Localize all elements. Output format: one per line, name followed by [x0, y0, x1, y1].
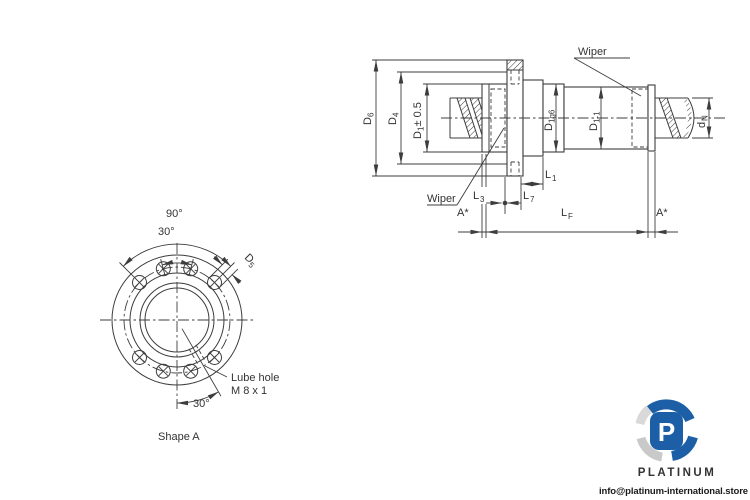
- svg-text:N: N: [701, 115, 710, 121]
- dim-label-lf: L F: [561, 207, 573, 221]
- angle-30-top-label: 30°: [158, 226, 175, 238]
- technical-drawing-canvas: Wiper Wiper D 6 D 4 D 1 ± 0.5 D 1g6 D 1-…: [0, 0, 750, 500]
- dim-label-a-right: A*: [656, 207, 668, 219]
- shape-a-caption: Shape A: [158, 431, 200, 443]
- wiper-label-top: Wiper: [578, 46, 607, 58]
- logo-swirl-gray-top: [640, 409, 649, 424]
- dim-label-l1: L 1: [545, 169, 557, 183]
- front-view: 90° 30° 30° D 5 Lube hole M 8 x 1 Shape …: [100, 208, 279, 443]
- svg-text:L: L: [545, 169, 551, 181]
- dim-label-d4: D 4: [387, 112, 401, 125]
- svg-text:L: L: [561, 207, 567, 219]
- contact-email: info@platinum-international.store: [599, 486, 748, 497]
- dim-label-d1-tol: D 1 ± 0.5: [412, 102, 426, 139]
- dim-label-dn: d N: [696, 115, 710, 128]
- dim-label-l7: L 7: [523, 190, 535, 204]
- svg-text:D: D: [412, 131, 424, 139]
- svg-text:F: F: [568, 212, 573, 221]
- svg-text:L: L: [523, 190, 529, 202]
- angle-30-bottom-label: 30°: [193, 398, 210, 410]
- svg-text:± 0.5: ± 0.5: [412, 102, 424, 126]
- svg-text:1-1: 1-1: [593, 111, 602, 123]
- svg-text:D: D: [362, 117, 374, 125]
- dim-label-l3: L 3: [473, 190, 485, 204]
- svg-text:7: 7: [530, 195, 535, 204]
- brand-wordmark: PLATINUM: [638, 467, 717, 479]
- lube-hole-label-line2: M 8 x 1: [231, 385, 267, 397]
- dim-label-d5: D 5: [241, 252, 260, 271]
- svg-text:1: 1: [552, 174, 557, 183]
- svg-text:D: D: [543, 123, 555, 131]
- svg-text:4: 4: [392, 112, 401, 117]
- svg-text:D: D: [588, 123, 600, 131]
- platinum-logo: P: [640, 404, 693, 457]
- dim-label-a-left: A*: [457, 207, 469, 219]
- svg-text:d: d: [696, 122, 708, 128]
- svg-text:D: D: [387, 117, 399, 125]
- angle-90-label: 90°: [166, 208, 183, 220]
- svg-text:3: 3: [480, 195, 485, 204]
- flange-lube-boss: [507, 60, 523, 70]
- side-view: Wiper Wiper D 6 D 4 D 1 ± 0.5 D 1g6 D 1-…: [362, 46, 728, 238]
- watermark: P PLATINUM info@platinum-international.s…: [599, 404, 748, 497]
- wiper-label-left: Wiper: [427, 193, 456, 205]
- svg-text:L: L: [473, 190, 479, 202]
- dim-label-d6: D 6: [362, 112, 376, 125]
- svg-text:6: 6: [367, 112, 376, 117]
- lube-hole-center-mark: [503, 201, 508, 206]
- logo-letter: P: [658, 417, 675, 447]
- svg-text:1g6: 1g6: [548, 109, 557, 123]
- lube-hole-label-line1: Lube hole: [231, 372, 279, 384]
